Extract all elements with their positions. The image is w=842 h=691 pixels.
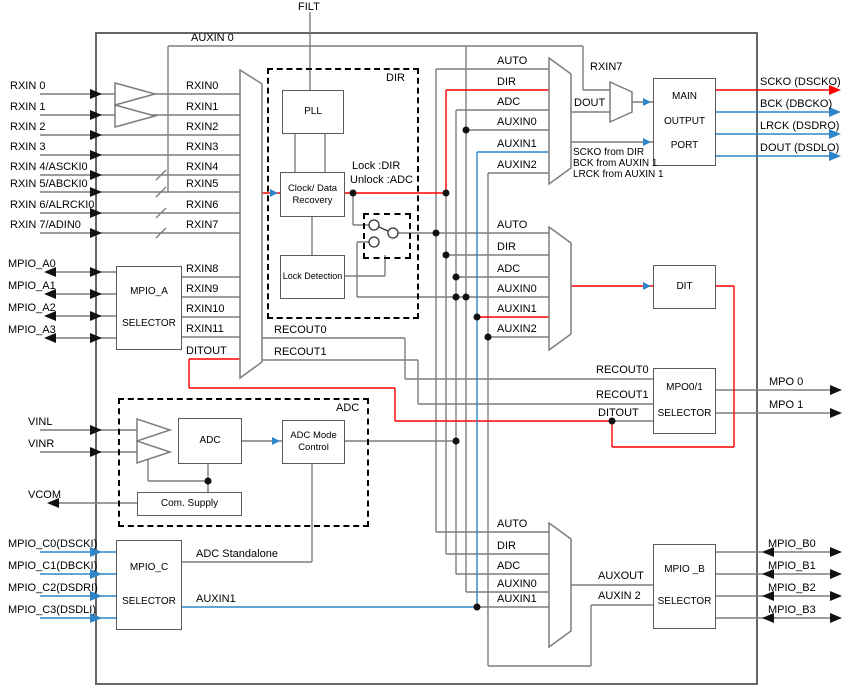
port-note-1: SCKO from DIR (573, 147, 644, 158)
dit-block: DIT (653, 265, 716, 309)
auxin0-top-label: AUXIN 0 (191, 32, 234, 44)
pll-label: PLL (304, 106, 322, 119)
output-mux-1 (549, 58, 571, 184)
cdr-line2: Recovery (292, 195, 332, 207)
rxin1-buffer (115, 105, 155, 127)
main-output-port-line3: PORT (671, 140, 699, 153)
mux1-auxin2-label: AUXIN2 (497, 159, 537, 171)
pin-mpio-b3: MPIO_B3 (768, 604, 816, 616)
pin-mpio-c1: MPIO_C1(DBCKI) (8, 560, 97, 572)
rxin3-buf-label: RXIN3 (186, 141, 218, 153)
pin-vcom: VCOM (28, 489, 61, 501)
pin-rxin7: RXIN 7/ADIN0 (10, 219, 81, 231)
input-mux (240, 70, 262, 378)
pin-bck: BCK (DBCKO) (760, 98, 832, 110)
pin-mpio-c3: MPIO_C3(DSDLI) (8, 604, 96, 616)
pin-rxin1: RXIN 1 (10, 101, 45, 113)
mux3-dir-label: DIR (497, 540, 516, 552)
main-output-port-line1: MAIN (672, 91, 697, 104)
port-note-2: BCK from AUXIN 1 (573, 158, 657, 169)
pin-mpio-c2: MPIO_C2(DSDRI) (8, 582, 98, 594)
pin-mpo1: MPO 1 (769, 399, 803, 411)
dout-label: DOUT (574, 97, 605, 109)
rxin7-buf-label: RXIN7 (186, 219, 218, 231)
adc-mode-line2: Control (298, 442, 329, 454)
pin-rxin0: RXIN 0 (10, 80, 45, 92)
pll-block: PLL (282, 90, 344, 134)
rxin1-buf-label: RXIN1 (186, 101, 218, 113)
lock-dir-note: Lock :DIR (352, 160, 400, 172)
mpio-a-selector-line1: MPIO_A (130, 286, 168, 299)
rxin2-buf-label: RXIN2 (186, 121, 218, 133)
mux3-adc-label: ADC (497, 560, 520, 572)
com-supply-block: Com. Supply (137, 492, 242, 516)
dout-rxin7-mux (610, 82, 632, 122)
mpo-selector-block: MPO0/1 SELECTOR (653, 368, 716, 434)
pin-rxin2: RXIN 2 (10, 121, 45, 133)
ditout-mux-label: DITOUT (186, 345, 227, 357)
main-output-port-line2: OUTPUT (664, 116, 705, 129)
adc-label: ADC (199, 435, 220, 448)
lock-detection-label: Lock Detection (283, 271, 343, 282)
pin-mpio-a0: MPIO_A0 (8, 258, 56, 270)
mpio-a-selector-line2: SELECTOR (122, 318, 176, 331)
mux3-auxin1-label: AUXIN1 (497, 593, 537, 605)
mpio-c-selector-block: MPIO_C SELECTOR (116, 540, 182, 630)
pin-rxin3: RXIN 3 (10, 141, 45, 153)
recout1-mux-label: RECOUT1 (274, 346, 327, 358)
adc-standalone-label: ADC Standalone (196, 548, 278, 560)
mux1-dir-label: DIR (497, 76, 516, 88)
mux2-adc-label: ADC (497, 263, 520, 275)
mux2-auto-label: AUTO (497, 219, 527, 231)
pin-vinl: VINL (28, 416, 52, 428)
mux3-auxin0-label: AUXIN0 (497, 578, 537, 590)
rxin9-label: RXIN9 (186, 283, 218, 295)
unlock-adc-note: Unlock :ADC (350, 174, 413, 186)
auxin1-out-label: AUXIN1 (196, 593, 236, 605)
port-note-3: LRCK from AUXIN 1 (573, 169, 664, 180)
cdr-line1: Clock/ Data (288, 183, 337, 195)
pin-mpio-b2: MPIO_B2 (768, 582, 816, 594)
pin-vinr: VINR (28, 438, 54, 450)
auxout-mux (549, 523, 571, 647)
adc-mode-control-block: ADC Mode Control (282, 420, 345, 464)
rxin8-label: RXIN8 (186, 263, 218, 275)
clock-data-recovery-block: Clock/ Data Recovery (280, 172, 345, 217)
rxin6-buf-label: RXIN6 (186, 199, 218, 211)
rxin0-buffer (115, 83, 155, 105)
adc-mode-line1: ADC Mode (290, 430, 336, 442)
adc-box-title: ADC (336, 402, 359, 414)
pin-lrck: LRCK (DSDRO) (760, 120, 839, 132)
pin-mpio-b0: MPIO_B0 (768, 538, 816, 550)
mux1-auto-label: AUTO (497, 55, 527, 67)
rxin0-buf-label: RXIN0 (186, 80, 218, 92)
rxin7-top-label: RXIN7 (590, 61, 622, 73)
pin-mpo0: MPO 0 (769, 376, 803, 388)
recout0-mux-label: RECOUT0 (274, 324, 327, 336)
filt-pin-label: FILT (298, 1, 320, 13)
mpo-selector-line2: SELECTOR (658, 408, 712, 421)
pin-rxin4: RXIN 4/ASCKI0 (10, 161, 88, 173)
recout0-sel-label: RECOUT0 (596, 364, 649, 376)
mux2-dir-label: DIR (497, 241, 516, 253)
pin-mpio-c0: MPIO_C0(DSCKI) (8, 538, 97, 550)
mpio-b-selector-line1: MPIO _B (664, 564, 705, 577)
pin-rxin6: RXIN 6/ALRCKI0 (10, 199, 94, 211)
dir-box-title: DIR (386, 72, 405, 84)
pin-mpio-a2: MPIO_A2 (8, 302, 56, 314)
auxout-label: AUXOUT (598, 570, 644, 582)
rxin4-buf-label: RXIN4 (186, 161, 218, 173)
mux2-auxin2-label: AUXIN2 (497, 323, 537, 335)
rxin11-label: RXIN11 (186, 323, 224, 335)
dit-label: DIT (676, 281, 692, 294)
mux2-auxin1-label: AUXIN1 (497, 303, 537, 315)
mpio-c-selector-line2: SELECTOR (122, 596, 176, 609)
pin-mpio-a3: MPIO_A3 (8, 324, 56, 336)
main-output-port-block: MAIN OUTPUT PORT (653, 78, 716, 166)
mpio-a-selector-block: MPIO_A SELECTOR (116, 266, 182, 350)
mux2-auxin0-label: AUXIN0 (497, 283, 537, 295)
mpio-c-selector-line1: MPIO_C (130, 562, 168, 575)
ditout-sel-label: DITOUT (598, 407, 639, 419)
rxin10-label: RXIN10 (186, 303, 225, 315)
adc-block: ADC (178, 418, 242, 464)
lock-detection-block: Lock Detection (280, 255, 345, 299)
switch-dashed-box (363, 213, 411, 259)
mux3-auto-label: AUTO (497, 518, 527, 530)
pin-scko: SCKO (DSCKO) (760, 76, 841, 88)
mpo-selector-line1: MPO0/1 (666, 382, 703, 395)
pin-mpio-b1: MPIO_B1 (768, 560, 816, 572)
pin-mpio-a1: MPIO_A1 (8, 280, 56, 292)
pin-rxin5: RXIN 5/ABCKI0 (10, 178, 88, 190)
recout1-sel-label: RECOUT1 (596, 389, 649, 401)
mpio-b-selector-line2: SELECTOR (658, 596, 712, 609)
mux1-adc-label: ADC (497, 96, 520, 108)
auxin2-in-label: AUXIN 2 (598, 590, 641, 602)
rxin5-buf-label: RXIN5 (186, 178, 218, 190)
mux1-auxin0-label: AUXIN0 (497, 116, 537, 128)
mux1-auxin1-label: AUXIN1 (497, 138, 537, 150)
block-diagram: MPIO_A SELECTOR PLL Clock/ Data Recovery… (0, 0, 842, 691)
mpio-b-selector-block: MPIO _B SELECTOR (653, 544, 716, 629)
com-supply-label: Com. Supply (161, 498, 218, 511)
pin-dout: DOUT (DSDLO) (760, 142, 839, 154)
dit-source-mux (549, 227, 571, 350)
